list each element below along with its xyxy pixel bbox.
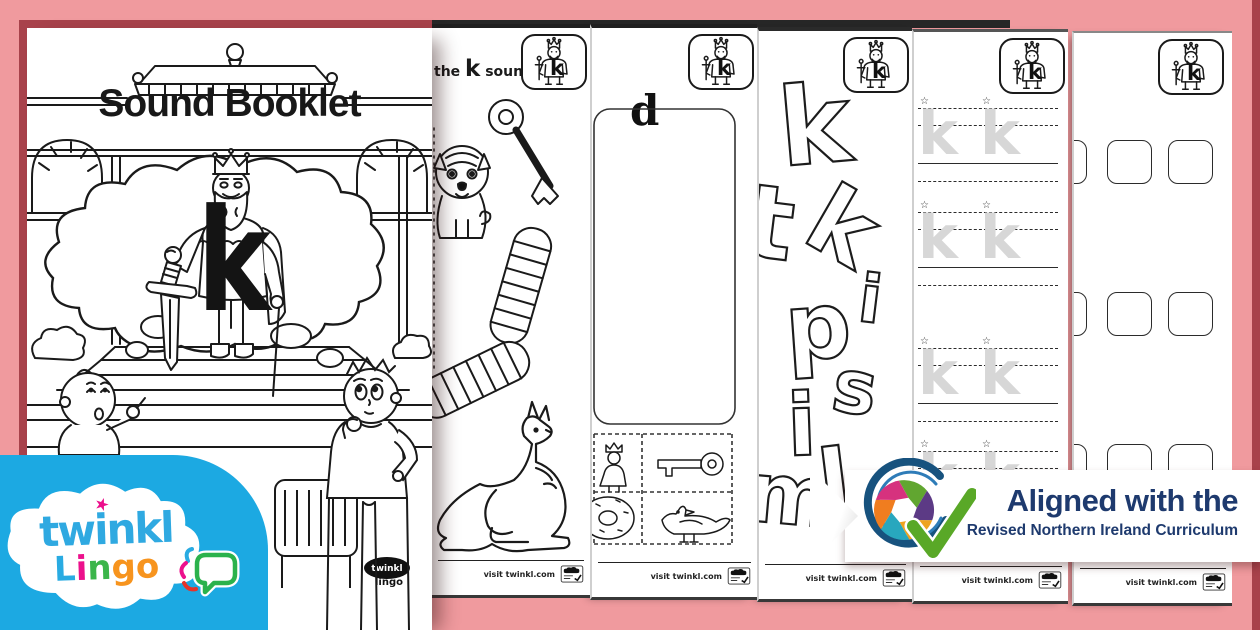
knee-pad-picture [432, 224, 555, 424]
handwriting-line-group: ☆ ☆ k k [918, 348, 1058, 428]
twinkl-footer-badge [1038, 571, 1062, 589]
trace-letter: k [918, 208, 958, 268]
twinkl-footer-badge [560, 565, 584, 583]
key-cut-out [658, 453, 723, 476]
king-letter-badge: k [1158, 39, 1224, 95]
twinkl-resource-preview: k twinkl lingo [0, 0, 1260, 630]
boy-illustration [327, 358, 417, 630]
worksheet-sound-sort: k d [590, 24, 757, 600]
seagull-cut-out [662, 506, 730, 542]
twinkl-lingo-panel: twinkl ★ Lingo [0, 455, 268, 630]
trace-letter: k [980, 208, 1020, 268]
handwriting-line-group: ☆ ☆ k k [918, 212, 1058, 292]
page-footer: visit twinkl.com [1080, 568, 1226, 591]
lingo-wordmark: Lingo [53, 549, 159, 587]
booklet-title: Sound Booklet [57, 84, 402, 123]
toddler-illustration [59, 370, 145, 455]
handwriting-line-group: ☆ ☆ k k [918, 108, 1058, 188]
curriculum-text: Aligned with the Revised Northern Irelan… [948, 483, 1238, 542]
trace-letter: k [980, 344, 1020, 404]
twinkl-footer-badge [882, 569, 906, 587]
trace-letter: k [980, 104, 1020, 164]
lingo-mascot-icon [176, 539, 248, 603]
king-cut-out [600, 443, 626, 492]
page-footer: visit twinkl.com [438, 560, 584, 583]
key-picture [489, 100, 558, 204]
donut-cut-out [592, 497, 634, 539]
page-footer: visit twinkl.com [598, 562, 751, 585]
worksheet-pictures [432, 28, 590, 598]
kangaroo-picture [438, 402, 569, 551]
ribbon-line2: Revised Northern Ireland Curriculum [948, 519, 1238, 542]
letter-box [1168, 292, 1213, 336]
twinkl-footer-badge [1202, 573, 1226, 591]
letter-box [1072, 292, 1087, 336]
trace-letter: k [918, 104, 958, 164]
pug-picture [434, 146, 490, 238]
letter-box [1107, 140, 1152, 184]
worksheet-colour-pictures: the k sound. k [432, 24, 590, 598]
letter-box [1072, 140, 1087, 184]
king-letter-badge: k [999, 38, 1065, 94]
trace-letter: k [918, 344, 958, 404]
sort-grid [592, 28, 757, 600]
letter-box [1107, 292, 1152, 336]
ribbon-line1: Aligned with the [948, 483, 1238, 519]
cover-big-letter: k [197, 180, 274, 345]
twinkl-footer-badge [727, 567, 751, 585]
king-letter-badge: k [843, 37, 909, 93]
letter-box [1168, 140, 1213, 184]
bench-sticker-product: lingo [375, 577, 403, 588]
outline-letter: i [855, 266, 885, 334]
